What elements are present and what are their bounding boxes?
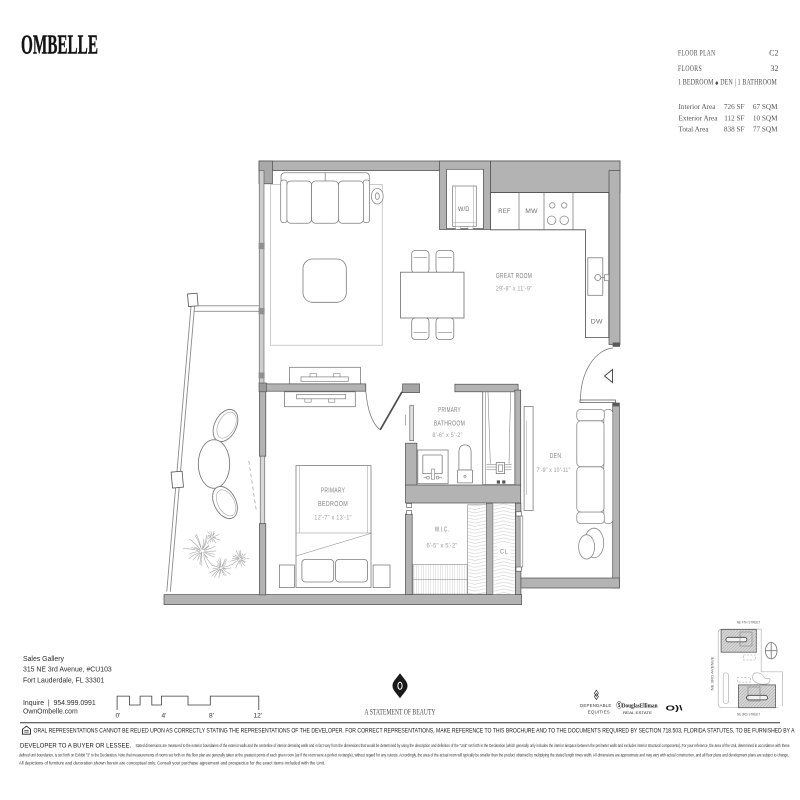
svg-text:DW: DW [591, 319, 603, 326]
svg-text:ⓈDouglasElliman: ⓈDouglasElliman [617, 700, 658, 709]
svg-text:FLOOR PLAN: FLOOR PLAN [678, 49, 716, 58]
svg-text:All depictions of furniture an: All depictions of furniture and decorati… [19, 760, 325, 765]
svg-text:REF: REF [498, 208, 511, 215]
svg-text:Fort Lauderdale, FL 33301: Fort Lauderdale, FL 33301 [23, 677, 105, 684]
svg-text:PRIMARY: PRIMARY [321, 486, 346, 495]
svg-text:DEPENDABLE: DEPENDABLE [580, 703, 612, 708]
svg-text:112 SF: 112 SF [724, 114, 744, 122]
svg-text:OMBELLE: OMBELLE [21, 29, 98, 60]
svg-text:GREAT ROOM: GREAT ROOM [496, 271, 533, 280]
svg-text:Sales Gallery: Sales Gallery [23, 656, 65, 663]
svg-text:67 SQM: 67 SQM [753, 103, 778, 111]
svg-text:DEN: DEN [550, 451, 562, 460]
svg-text:CL: CL [500, 549, 508, 556]
svg-text:W/D: W/D [458, 206, 470, 213]
svg-text:BEDROOM: BEDROOM [318, 499, 348, 508]
svg-text:Stated dimensions are measured: Stated dimensions are measured to the ex… [136, 743, 790, 748]
svg-text:ORAL REPRESENTATIONS CANNOT BE: ORAL REPRESENTATIONS CANNOT BE RELIED UP… [34, 729, 795, 735]
svg-text:A STATEMENT OF BEAUTY: A STATEMENT OF BEAUTY [365, 708, 436, 717]
svg-text:REAL ESTATE: REAL ESTATE [623, 711, 652, 715]
svg-text:W.I.C.: W.I.C. [435, 525, 450, 534]
svg-text:1 BEDROOM ◆ DEN | 1 BATHROOM: 1 BEDROOM ◆ DEN | 1 BATHROOM [678, 77, 777, 86]
svg-text:MW: MW [525, 208, 538, 215]
svg-text:Interior Area: Interior Area [679, 103, 717, 111]
svg-text:O)\: O)\ [666, 706, 683, 713]
svg-text:C2: C2 [769, 49, 778, 58]
svg-text:6'-5" x 5'-2": 6'-5" x 5'-2" [427, 543, 458, 549]
svg-text:PRIMARY: PRIMARY [438, 405, 461, 414]
svg-text:10 SQM: 10 SQM [753, 114, 778, 122]
svg-text:32: 32 [771, 64, 779, 73]
svg-text:29'-8" x 11'-9": 29'-8" x 11'-9" [496, 287, 533, 293]
svg-text:0': 0' [116, 713, 121, 720]
svg-text:NE 4TH STREET: NE 4TH STREET [737, 619, 761, 624]
svg-text:4': 4' [162, 713, 167, 720]
svg-text:726 SF: 726 SF [724, 103, 745, 111]
svg-text:12'-7" x 13'-1": 12'-7" x 13'-1" [314, 516, 352, 522]
svg-text:12': 12' [254, 713, 263, 720]
svg-text:8': 8' [209, 713, 214, 720]
svg-text:8'-6" x 5'-2": 8'-6" x 5'-2" [432, 433, 462, 439]
svg-text:BATHROOM: BATHROOM [434, 418, 465, 427]
svg-text:838 SF: 838 SF [724, 126, 745, 134]
svg-text:defined unit boundaries, is se: defined unit boundaries, is set forth on… [19, 752, 789, 757]
svg-text:FLOORS: FLOORS [678, 64, 702, 73]
svg-text:DEVELOPER TO A BUYER OR LESSEE: DEVELOPER TO A BUYER OR LESSEE. [20, 743, 131, 749]
svg-text:Total Area: Total Area [679, 126, 710, 134]
svg-text:EQUITIES: EQUITIES [588, 709, 610, 714]
svg-text:Exterior Area: Exterior Area [679, 114, 719, 122]
svg-text:NE 3RD AVENUE: NE 3RD AVENUE [710, 656, 715, 690]
svg-text:7'-9" x 10'-11": 7'-9" x 10'-11" [537, 468, 571, 474]
svg-text:OwnOmbelle.com: OwnOmbelle.com [23, 708, 78, 715]
svg-text:77 SQM: 77 SQM [753, 126, 778, 134]
svg-text:Inquire | 954.999.0991: Inquire | 954.999.0991 [23, 700, 96, 707]
svg-text:NE 3RD STREET: NE 3RD STREET [737, 712, 760, 717]
svg-text:315 NE 3rd Avenue, #CU103: 315 NE 3rd Avenue, #CU103 [23, 667, 112, 674]
